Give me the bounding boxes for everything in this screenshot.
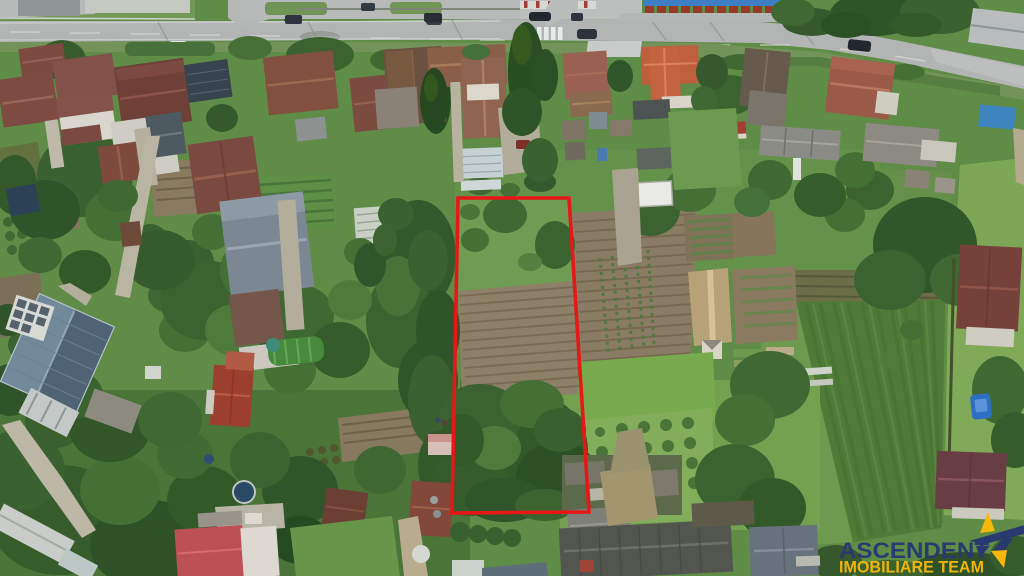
svg-text:IMOBILIARE TEAM: IMOBILIARE TEAM (839, 559, 984, 576)
